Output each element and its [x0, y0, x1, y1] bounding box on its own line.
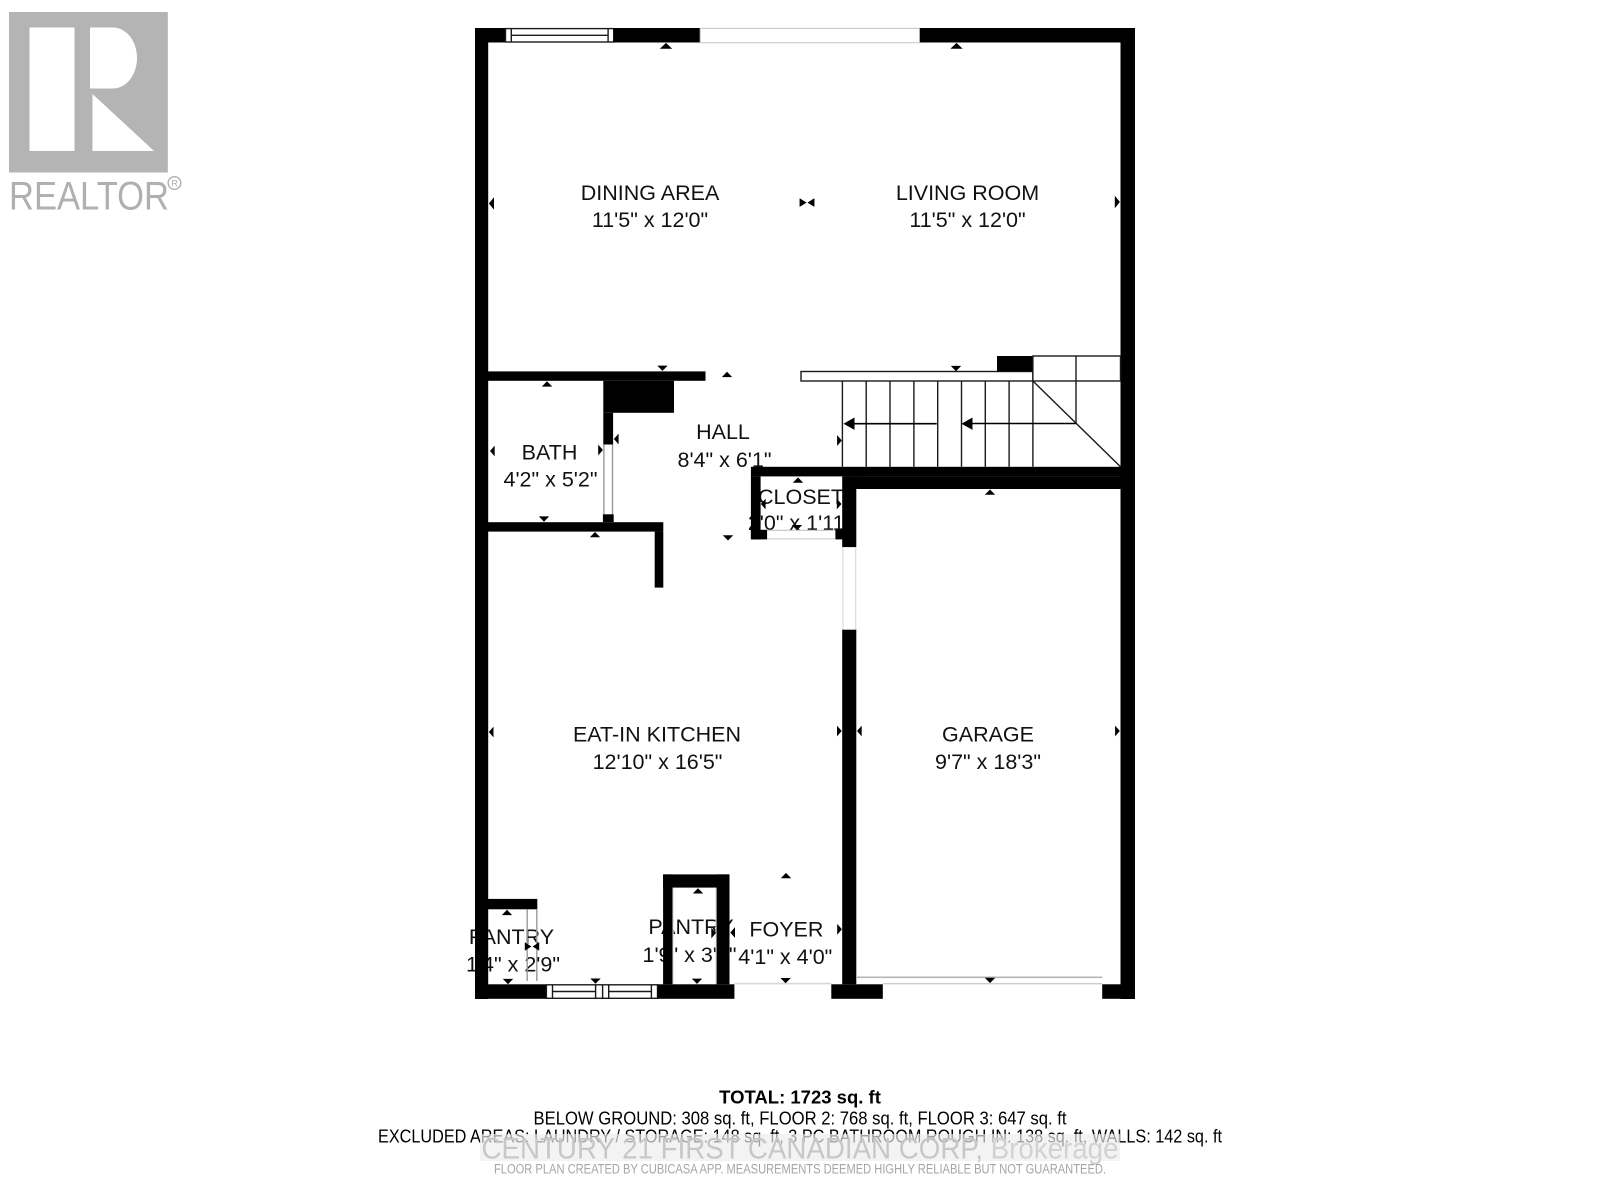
svg-text:11'5" x 12'0": 11'5" x 12'0" [592, 208, 708, 232]
svg-text:CLOSET: CLOSET [758, 485, 844, 509]
svg-text:TOTAL: 1723 sq. ft: TOTAL: 1723 sq. ft [719, 1087, 881, 1108]
svg-text:BATH: BATH [522, 441, 578, 465]
svg-text:GARAGE: GARAGE [942, 723, 1034, 747]
svg-text:12'10" x 16'5": 12'10" x 16'5" [593, 750, 723, 774]
svg-text:FLOOR PLAN CREATED BY CUBICASA: FLOOR PLAN CREATED BY CUBICASA APP. MEAS… [494, 1162, 1106, 1177]
svg-text:LIVING ROOM: LIVING ROOM [896, 181, 1039, 205]
svg-text:REALTOR: REALTOR [9, 175, 169, 219]
svg-text:EAT-IN KITCHEN: EAT-IN KITCHEN [573, 723, 741, 747]
svg-text:HALL: HALL [696, 420, 750, 444]
svg-text:FOYER: FOYER [749, 918, 823, 942]
svg-text:11'5" x 12'0": 11'5" x 12'0" [909, 208, 1025, 232]
svg-text:R: R [171, 179, 178, 190]
svg-text:4'1" x 4'0": 4'1" x 4'0" [738, 945, 832, 969]
svg-text:9'7" x 18'3": 9'7" x 18'3" [935, 750, 1041, 774]
svg-text:DINING AREA: DINING AREA [581, 181, 720, 205]
svg-text:4'2" x 5'2": 4'2" x 5'2" [504, 468, 598, 492]
